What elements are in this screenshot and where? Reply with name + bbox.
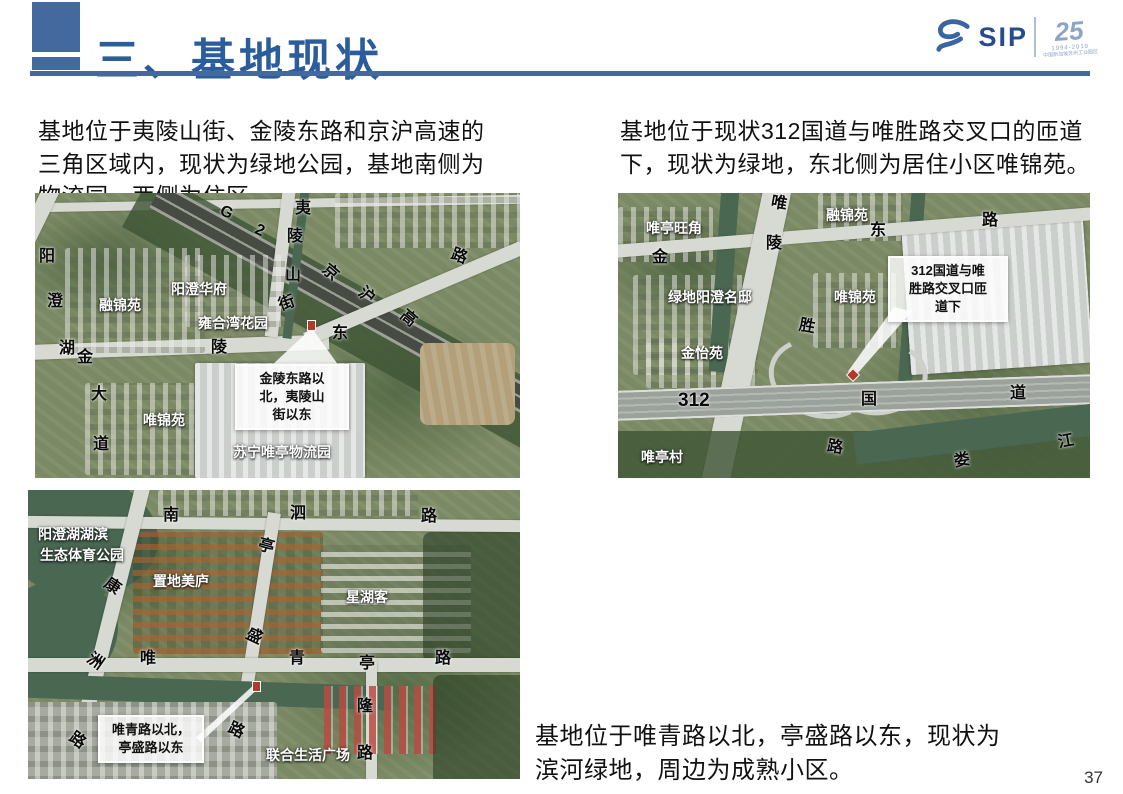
place-label: 阳澄湖湖滨 [38, 526, 108, 542]
villa-cluster-zhidimeilu [133, 532, 323, 654]
tree-area-east [423, 532, 520, 662]
urban-strip-north [158, 490, 418, 516]
callout-line: 唯青路以北， [102, 721, 200, 739]
title-decoration-bar [32, 57, 80, 70]
road-label: 唯 [140, 651, 156, 667]
road-label: 陵 [211, 340, 227, 356]
road-label: 东 [332, 326, 348, 342]
place-label: 雍合湾花园 [198, 315, 268, 331]
road-label: 道 [1010, 386, 1026, 402]
callout-line: 312国道与唯 [892, 262, 1004, 280]
road-label: 大 [91, 387, 107, 403]
road-label: 澄 [47, 294, 63, 310]
satellite-map-site1: 金陵东路以北，夷陵山街以东 阳澄湖金大道陵东路夷陵山街G2京沪高融锦苑阳澄华府雍… [35, 193, 520, 478]
road-label: 夷 [295, 201, 311, 217]
place-label: 联合生活广场 [266, 747, 350, 763]
callout-line: 北，夷陵山 [239, 388, 345, 406]
site3-callout: 唯青路以北，亭盛路以东 [98, 715, 204, 763]
road-label: 娄 [953, 452, 972, 471]
road-label: 金 [652, 250, 668, 266]
road-label: 陵 [287, 229, 303, 245]
callout-line: 胜路交叉口匝 [892, 280, 1004, 298]
callout-line: 道下 [892, 298, 1004, 316]
slide-page: 三、基地现状 SIP 25 1994-2019 中国新加坡苏州工业园区 基地位于… [0, 0, 1123, 794]
page-number: 37 [1084, 768, 1103, 788]
place-label: 星湖客 [346, 589, 388, 605]
road-label: 胜 [798, 318, 817, 337]
tree-area-southeast [433, 675, 520, 779]
site1-callout: 金陵东路以北，夷陵山街以东 [235, 364, 349, 430]
road-label: 陵 [766, 236, 782, 252]
paragraph-site2-description: 基地位于现状312国道与唯胜路交叉口的匝道下，现状为绿地，东北侧为居住小区唯锦苑… [620, 115, 1092, 180]
place-label: 生态体育公园 [40, 547, 124, 563]
road-label: 阳 [39, 249, 55, 265]
road-label: 国 [861, 392, 877, 408]
place-label: 融锦苑 [826, 207, 868, 223]
place-label: 置地美庐 [153, 573, 209, 589]
road-label: 312 [678, 391, 710, 410]
place-label: 苏宁唯亭物流园 [233, 444, 331, 460]
road-label: 道 [93, 437, 109, 453]
place-label: 唯亭村 [641, 449, 683, 465]
site-marker-pin [307, 320, 316, 331]
industrial-blocks-north [335, 193, 520, 248]
place-label: 阳澄华府 [171, 281, 227, 297]
callout-line: 街以东 [239, 406, 345, 424]
road-label: 江 [1057, 433, 1076, 452]
road-yangchenghu-avenue [35, 193, 64, 478]
satellite-map-site2: 312国道与唯胜路交叉口匝道下 金陵东路唯胜路312国道娄江唯亭旺角融锦苑绿地阳… [618, 193, 1090, 478]
bare-ground-site [420, 343, 515, 425]
sip-logo: SIP 25 1994-2019 中国新加坡苏州工业园区 [934, 12, 1097, 62]
place-label: 融锦苑 [99, 297, 141, 313]
anniversary-25-logo: 25 1994-2019 中国新加坡苏州工业园区 [1041, 16, 1099, 59]
anniversary-number: 25 [1054, 17, 1085, 45]
road-label: 金 [77, 350, 93, 366]
callout-line: 金陵东路以 [239, 370, 345, 388]
title-decoration-square [32, 2, 80, 52]
road-label: 东 [870, 223, 886, 239]
road-label: 泗 [290, 506, 306, 522]
paragraph-site3-description: 基地位于唯青路以北，亭盛路以东，现状为滨河绿地，周边为成熟小区。 [535, 720, 1020, 788]
header-rule [30, 71, 1090, 76]
road-label: 唯 [770, 195, 789, 214]
road-label: 亭 [359, 656, 375, 672]
road-label: 青 [289, 651, 305, 667]
site-marker-pin [252, 681, 261, 692]
callout-line: 亭盛路以东 [102, 739, 200, 757]
road-label: 路 [421, 509, 437, 525]
place-label: 唯亭旺角 [646, 220, 702, 236]
sip-swoosh-icon [934, 18, 972, 56]
road-label: 湖 [59, 341, 75, 357]
road-label: 路 [357, 746, 373, 762]
place-label: 金怡苑 [681, 345, 723, 361]
sip-logo-text: SIP [978, 22, 1028, 53]
page-title: 三、基地现状 [95, 35, 383, 88]
place-label: 唯锦苑 [143, 412, 185, 428]
place-label: 绿地阳澄名邸 [668, 289, 752, 305]
road-label: 山 [285, 268, 301, 284]
logo-divider [1034, 17, 1036, 57]
satellite-map-site3: 唯青路以北，亭盛路以东 南泗路康洲路亭盛路唯青路亭隆路阳澄湖湖滨生态体育公园置地… [28, 490, 520, 779]
road-label: 隆 [357, 699, 373, 715]
road-label: 路 [982, 213, 998, 229]
road-label: 南 [163, 508, 179, 524]
site2-callout: 312国道与唯胜路交叉口匝道下 [888, 256, 1008, 322]
road-label: 路 [826, 439, 845, 458]
place-label: 唯锦苑 [834, 289, 876, 305]
road-label: 路 [435, 651, 451, 667]
red-roof-buildings [324, 686, 436, 754]
